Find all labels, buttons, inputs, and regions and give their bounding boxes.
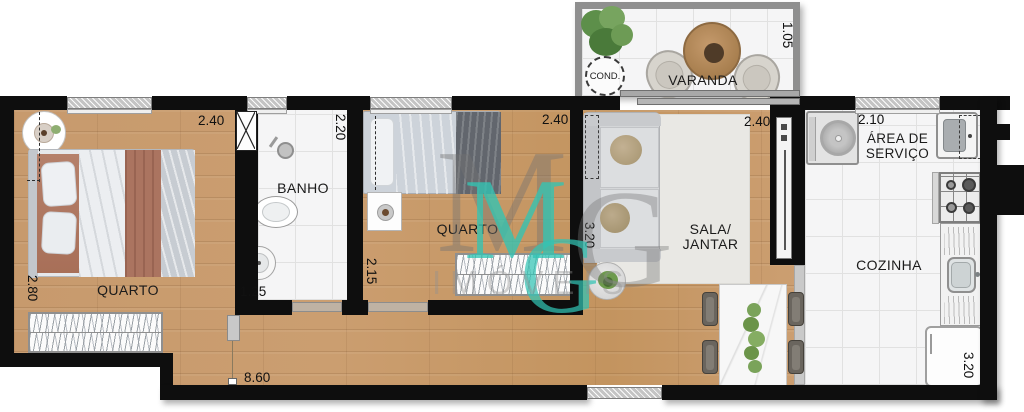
wall-stub [997,124,1010,140]
wall [287,96,370,110]
pillow [41,161,78,207]
counter-side-strip [932,172,939,224]
service-label-line2: SERVIÇO [860,146,935,161]
blanket-terracotta-band [125,150,165,277]
service-dim-top: 2.10 [858,112,884,127]
kitchen-dim-side: 3.20 [961,352,976,378]
window-bathroom [247,97,287,109]
bathroom-dim-bottom: 1.25 [240,284,266,299]
double-bed [28,149,195,277]
wall-bottom-left [0,353,160,367]
blanket-charcoal [456,112,501,194]
stove [939,172,982,223]
condenser-label: COND. [590,71,621,82]
wall-right [980,96,997,400]
floor-plan: COND. VARANDA 1.05 [0,0,1024,412]
door-leaf-bedroom1 [227,315,240,341]
bathroom-label: BANHO [270,181,336,196]
chair-seat [792,345,800,370]
door-opening-bedroom2 [368,302,428,312]
dining-table [719,284,787,388]
bathroom-dim-top: 2.20 [333,114,348,140]
table-plant [748,360,762,373]
table-centerpiece [704,43,724,63]
wall-bath-bedroom2 [347,110,363,315]
door-leaf-line [784,150,786,250]
wall [152,96,247,110]
stove-burner [946,180,956,190]
drainboard [944,227,978,255]
wardrobe [455,253,572,296]
table-plant [744,346,759,360]
corridor-dim: 8.60 [244,370,270,385]
living-label-line1: SALA/ [668,222,753,237]
wall-bottom [160,385,587,400]
window-service [855,97,940,109]
nightstand [367,192,402,231]
service-label-line1: ÁREA DE [860,131,935,146]
background-notch [0,367,160,412]
washing-machine [806,111,859,165]
wall-stub [997,165,1024,215]
stove-burner [946,202,957,213]
wall [452,96,620,110]
sofa-arm [584,249,661,262]
kitchen-sink-basin [951,262,971,288]
wardrobe [28,312,163,353]
shaft [236,111,257,151]
drainboard [944,296,978,324]
fan-accent [51,125,61,134]
balcony-label: VARANDA [658,73,748,88]
dining-chair [702,340,718,374]
table-plant [747,303,761,317]
dining-chair [702,292,718,326]
service-label: ÁREA DE SERVIÇO [860,131,935,161]
wall [800,96,855,110]
plant-leaf [611,24,633,46]
bedroom1-label: QUARTO [78,283,178,298]
wall [940,96,1010,110]
projection-box [585,115,599,179]
wall-bedroom2-living [570,110,583,315]
floor-plant [588,262,626,300]
table-plant [743,317,759,332]
hanging-clothes [457,255,570,274]
hanging-clothes [457,275,570,294]
wall [342,300,368,315]
projection-line [375,116,376,190]
living-label-line2: JANTAR [668,237,753,252]
shower-head [277,142,294,159]
stove-burner [963,202,975,214]
window-bedroom1 [67,97,152,109]
wall [428,300,583,315]
dining-chair [788,292,804,326]
bedroom2-dim-side: 2.15 [364,258,379,284]
wall-left [0,96,14,367]
condenser-symbol: COND. [585,56,625,96]
dimension-tick [228,378,237,385]
balcony-plant [577,4,641,62]
kitchen-label: COZINHA [850,258,928,273]
bedroom1-dim-top: 2.40 [198,113,224,128]
toilet-bowl-inner [262,202,290,222]
washer-hub [835,135,842,142]
balcony-dimension: 1.05 [780,22,795,48]
window-bedroom2 [370,97,452,109]
window-sill [370,109,452,114]
pillow [370,118,394,186]
plant-leaf [603,277,613,287]
projection-line [39,112,40,182]
fridge-handle [930,334,932,354]
chair-seat [706,345,714,370]
door-hinge [781,124,787,130]
window-kitchen-bottom [587,387,662,399]
dining-chair [788,340,804,374]
pot-center [382,209,389,216]
sheet-folds [396,112,456,194]
washer-controls [809,117,816,161]
wall [235,300,292,315]
projection-line [27,180,40,181]
stove-burner [962,178,976,192]
wall-step [160,353,173,389]
bedroom2-label: QUARTO [425,222,510,237]
sliding-door [637,98,800,105]
bedroom1-dim-side: 2.80 [25,275,40,301]
living-label: SALA/ JANTAR [668,222,753,252]
throw-pillow [610,135,642,165]
entry-door [776,117,792,259]
door-opening-bathroom [292,302,342,312]
wall-bottom [662,385,997,400]
chair-seat [706,297,714,322]
hanging-clothes [30,333,161,351]
pillow [41,211,77,255]
window-sill [67,109,152,114]
hanging-clothes [30,314,161,332]
sliding-door [620,90,800,97]
living-dim-side: 3.20 [582,222,597,248]
single-bed [363,111,500,194]
bedroom2-dim-top: 2.40 [542,112,568,127]
chair-seat [792,297,800,322]
table-plant [748,331,765,347]
fan-center [41,130,47,136]
kitchen-counter [940,223,982,326]
door-hinge [781,135,787,141]
throw-pillow [600,203,630,233]
living-dim-top: 2.40 [744,114,770,129]
blanket-gray [161,150,195,277]
